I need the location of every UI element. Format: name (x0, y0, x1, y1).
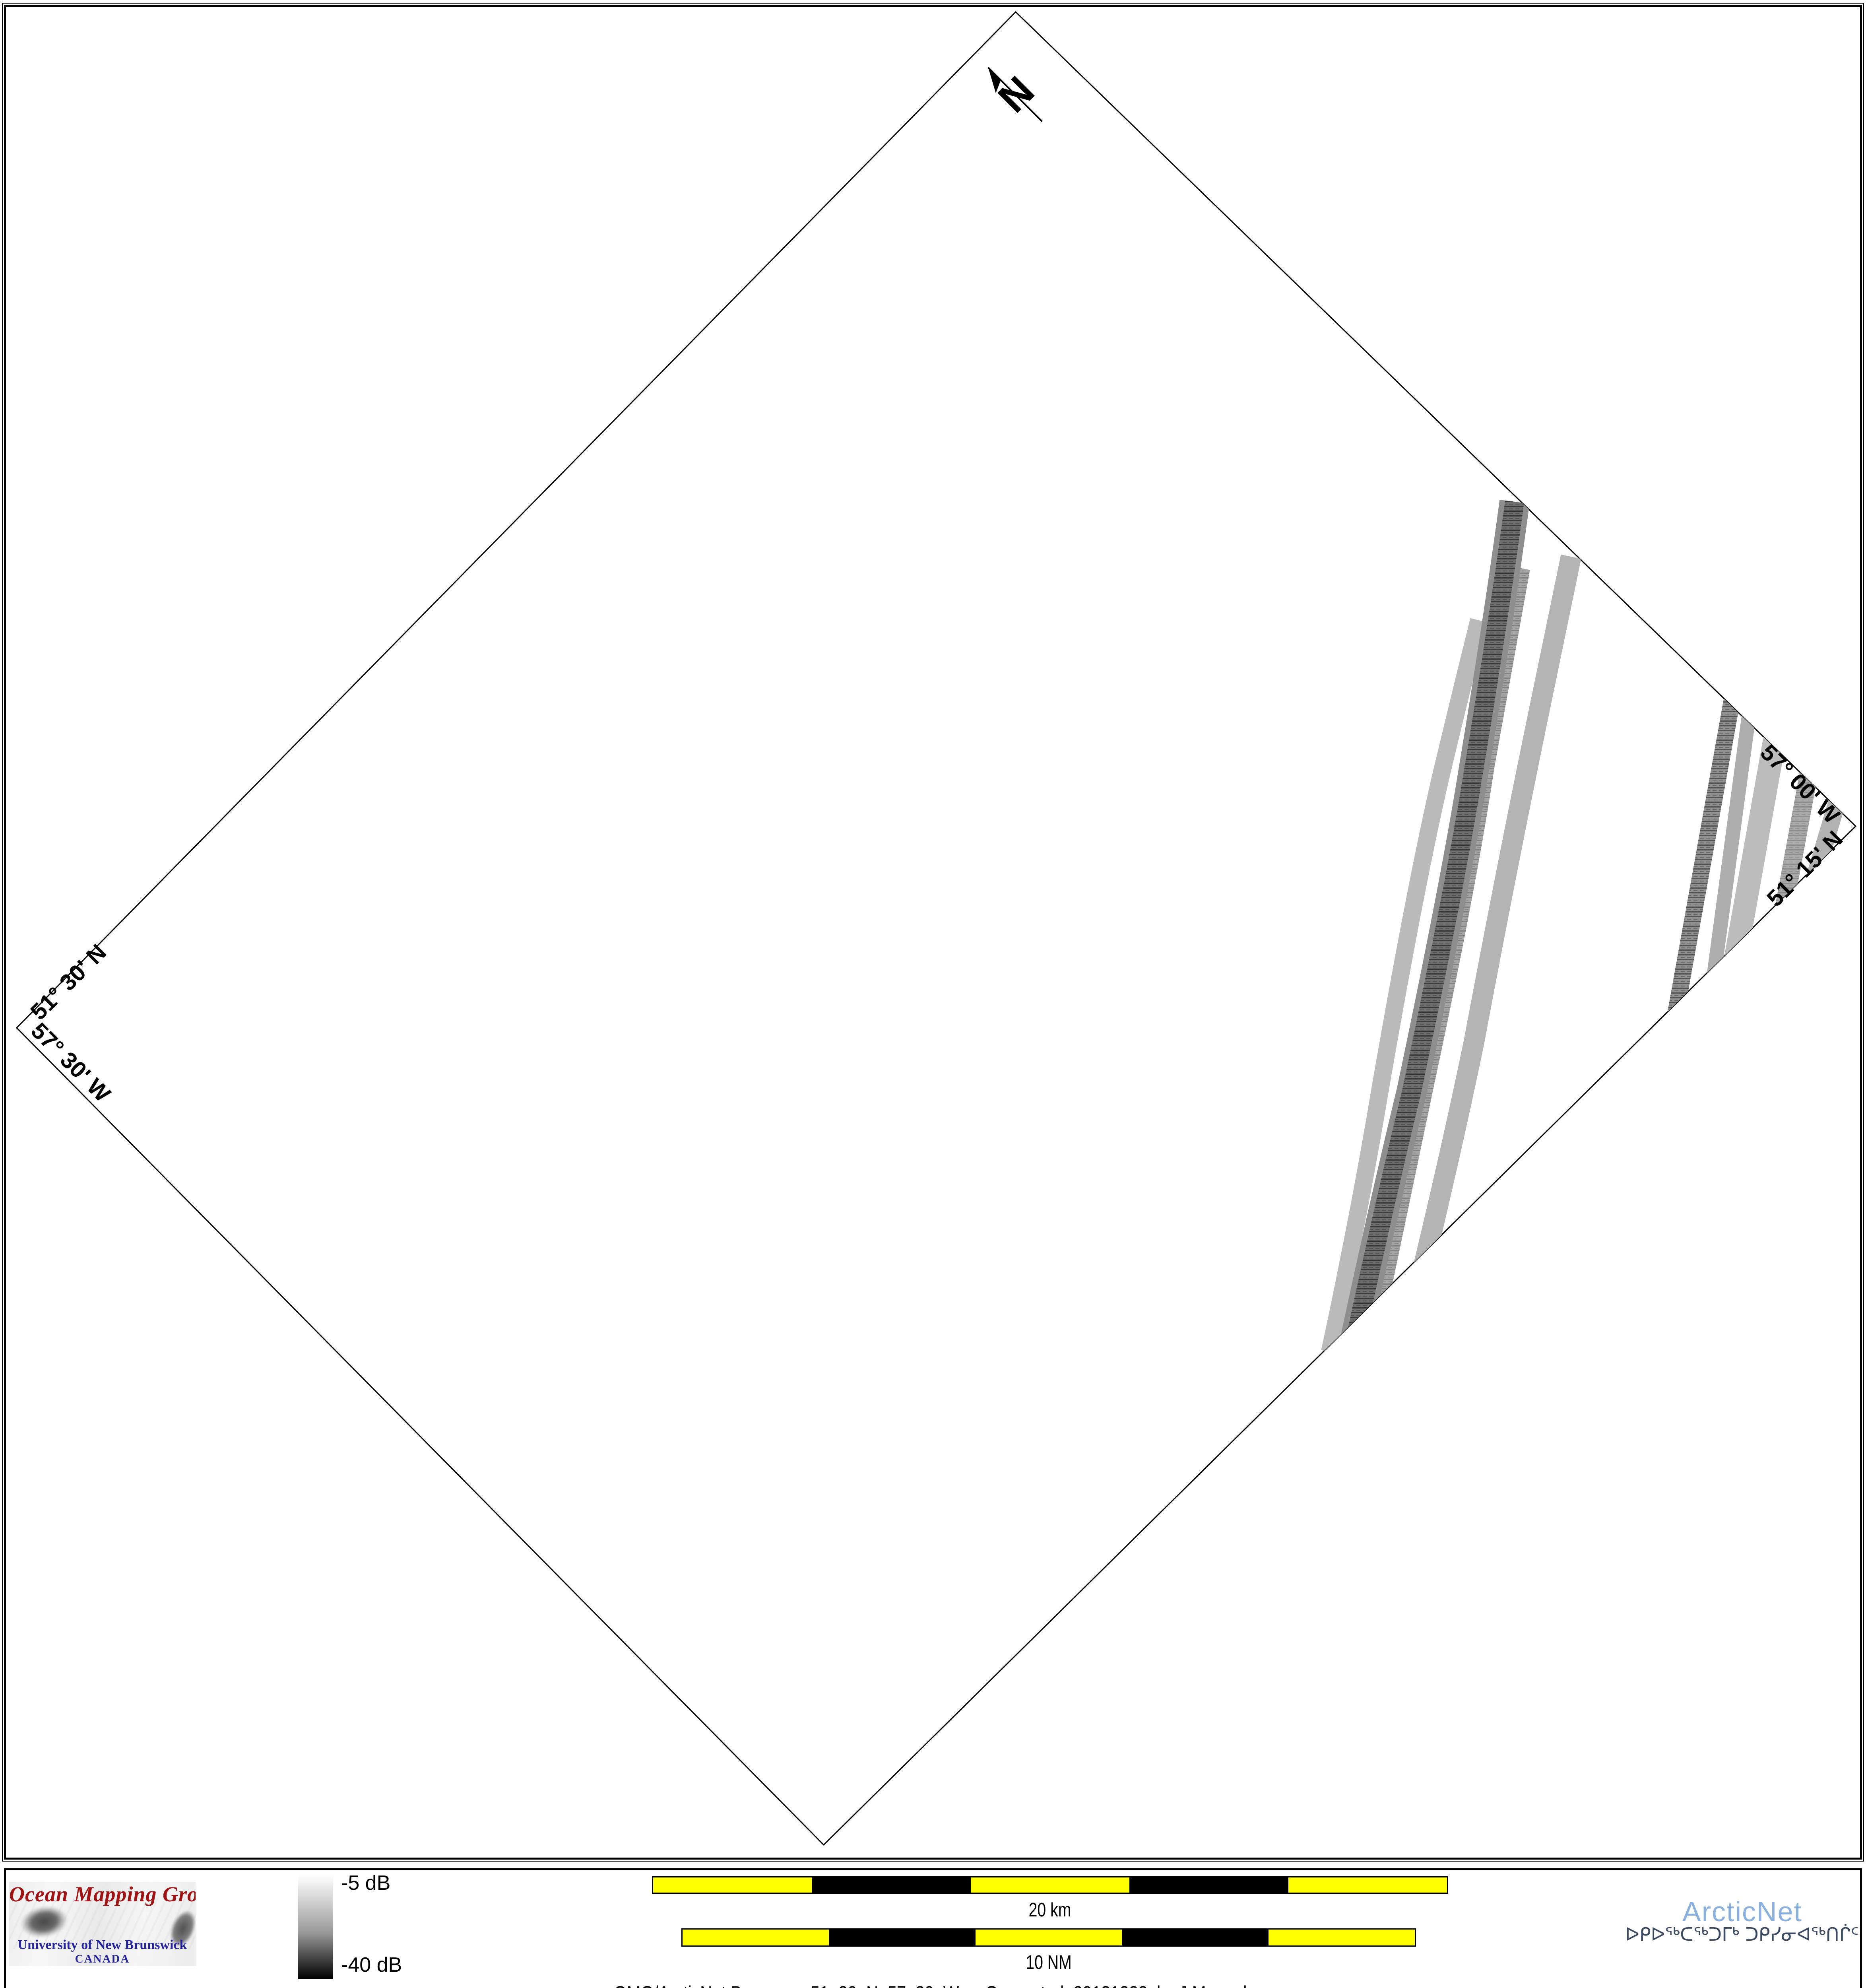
caption-basemap-text: OMG/ArcticNet Basemap: 51_30_N_57_30_W (614, 1982, 959, 1988)
omg-logo-country: CANADA (9, 1953, 196, 1966)
caption-generated-text: Generated: 20131223, by J.Muggah (985, 1982, 1252, 1988)
arcticnet-syllabics: ᐅᑭᐅᖅᑕᖅᑐᒥᒃ ᑐᑭᓯᓂᐊᖅᑎᒌᑦ (1622, 1924, 1862, 1945)
scalebar-segment (683, 1930, 829, 1945)
scalebar-segment (812, 1877, 970, 1893)
colorbar-min-label: -40 dB (341, 1953, 402, 1977)
omg-logo-title: Ocean Mapping Group (9, 1882, 196, 1906)
scalebar-segment (976, 1930, 1122, 1945)
backscatter-colorbar (298, 1875, 333, 1979)
omg-logo: Ocean Mapping Group University of New Br… (9, 1882, 196, 1966)
page: 51° 30' N 57° 30' W 57° 00' W 51° 15' N … (0, 0, 1866, 1988)
arcticnet-logo: ArcticNet (1643, 1896, 1842, 1928)
scalebar-segment (1122, 1930, 1268, 1945)
scalebar-segment (1288, 1877, 1447, 1893)
map-sheet-outline (17, 12, 1856, 1845)
scalebar-segment (829, 1930, 975, 1945)
scalebar-segment (1269, 1930, 1415, 1945)
scalebar-nautical-miles-label: 10 NM (985, 1951, 1112, 1974)
colorbar-max-label: -5 dB (341, 1871, 390, 1895)
map-caption: OMG/ArcticNet Basemap: 51_30_N_57_30_W G… (0, 1982, 1866, 1988)
omg-logo-university: University of New Brunswick (9, 1938, 196, 1953)
scalebar-kilometres-label: 20 km (986, 1899, 1113, 1921)
map-area: 51° 30' N 57° 30' W 57° 00' W 51° 15' N … (0, 0, 1866, 1988)
scalebar-segment (971, 1877, 1129, 1893)
scalebar-segment (1129, 1877, 1288, 1893)
scalebar-kilometres (652, 1876, 1448, 1894)
scalebar-nautical-miles (681, 1928, 1416, 1947)
scalebar-segment (653, 1877, 812, 1893)
